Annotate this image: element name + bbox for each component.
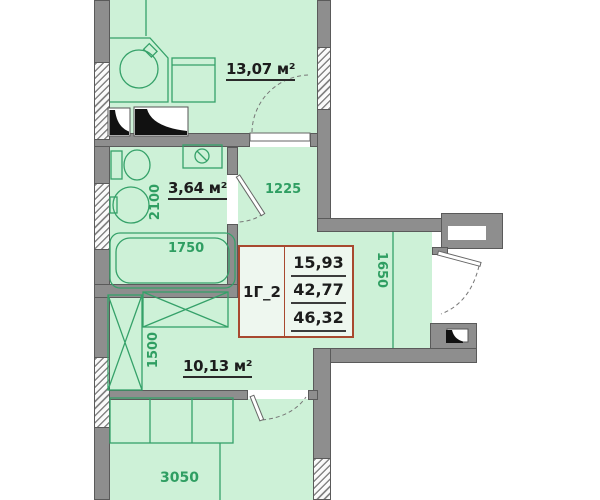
apartment-area-value: 42,77 [291, 278, 346, 304]
hall-area-label: 10,13 м² [183, 357, 252, 375]
area-values-cell: 15,93 42,77 46,32 [285, 247, 352, 336]
total-area-value: 46,32 [291, 306, 346, 332]
dim-bathtub-length: 1750 [168, 241, 204, 256]
wardrobe-wide-cross [143, 292, 228, 327]
bedroom-door-swing [262, 397, 306, 420]
toilet-bowl-icon [124, 150, 150, 180]
bedroom-cabinet-dividers [150, 398, 192, 443]
bedroom-cabinet [110, 398, 233, 443]
wash-basin-icon [113, 187, 149, 223]
kitchen-counter [110, 38, 168, 102]
entry-door-opening [448, 226, 486, 240]
bathroom-door-swing [238, 214, 263, 222]
bedroom-door-opening [248, 390, 308, 399]
kitchen-door-leaf [250, 133, 310, 141]
dim-bathroom-width: 2100 [148, 180, 163, 224]
washing-machine-detail [197, 151, 207, 161]
apartment-info-table: 1Г_2 15,93 42,77 46,32 [238, 245, 354, 338]
wardrobe-tall-cross [108, 295, 142, 390]
dim-hallway-width: 1225 [265, 182, 301, 197]
living-area-value: 15,93 [291, 251, 346, 277]
balcony-door-swing [441, 266, 479, 314]
bathroom-area-label: 3,64 м² [168, 179, 227, 197]
toilet-tank-icon [111, 151, 122, 179]
dim-wardrobe-wall: 1500 [146, 328, 161, 372]
kitchen-area-label: 13,07 м² [226, 60, 295, 78]
floor-plan: 13,07 м² 3,64 м² 10,13 м² 2100 1750 1225… [0, 0, 600, 500]
kitchen-door-swing [252, 75, 310, 132]
balcony-door-leaf [437, 251, 481, 266]
bedroom-door-leaf [250, 395, 263, 421]
unit-type-cell: 1Г_2 [240, 247, 285, 336]
bathroom-door-leaf [236, 175, 264, 216]
dim-entry-wall: 1650 [374, 248, 389, 292]
bathroom-door-opening [227, 175, 238, 224]
kitchen-tap-icon [144, 44, 157, 57]
dim-bedroom-width: 3050 [160, 470, 199, 486]
